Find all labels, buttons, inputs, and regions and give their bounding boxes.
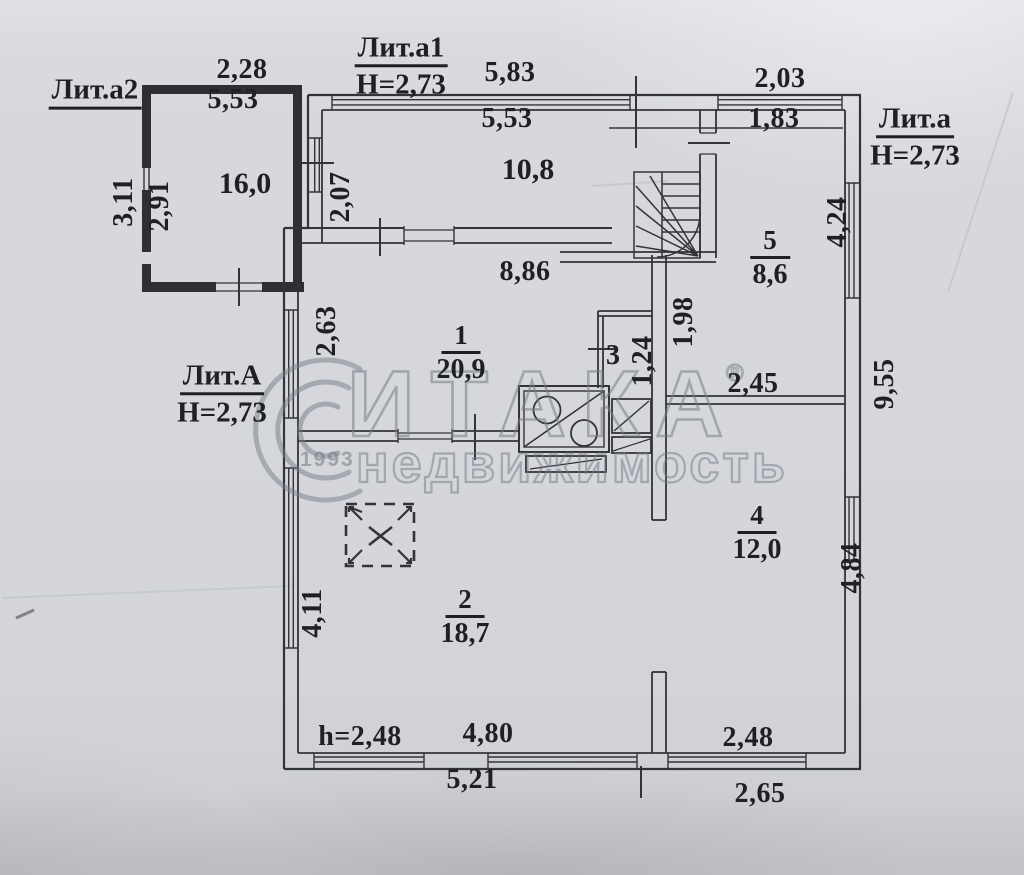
- chimney-vent-symbol: [346, 504, 414, 566]
- veranda-a1-label: Лит.а1 Н=2,73: [355, 32, 448, 99]
- plan-lines-layer: [0, 0, 1024, 875]
- watermark-registered-icon: ®: [726, 362, 744, 386]
- annex-a2-area: 16,0: [219, 169, 272, 199]
- veranda-room1-door: [380, 218, 454, 256]
- main-inner-walls: [284, 110, 845, 753]
- dim-480: 4,80: [463, 720, 514, 748]
- annex-a2-walls: [142, 85, 304, 292]
- room-label-2: 2 18,7: [441, 586, 490, 648]
- dim-484: 4,84: [838, 543, 866, 594]
- pen-mark: [16, 610, 34, 618]
- dim-a1-left: 2,07: [327, 172, 355, 223]
- dim-955: 9,55: [871, 359, 899, 410]
- sink-symbol: [612, 399, 651, 453]
- dim-a-width-outer: 2,03: [755, 65, 806, 93]
- dim-a-right-upper: 4,24: [824, 197, 852, 248]
- dim-124: 1,24: [629, 336, 657, 387]
- veranda-a1-area: 10,8: [502, 155, 555, 185]
- room-label-1: 1 20,9: [437, 322, 486, 384]
- watermark-logo-arcs: [0, 0, 1024, 875]
- dim-h248: h=2,48: [318, 723, 402, 751]
- dim-245: 2,45: [728, 370, 779, 398]
- dim-521: 5,21: [447, 766, 498, 794]
- dim-a2-width-outer: 2,28: [217, 56, 268, 84]
- room-label-5: 5 8,6: [750, 227, 790, 289]
- dim-a-width-inner: 1,83: [749, 105, 800, 133]
- dim-a2-width-inner: 5,53: [208, 86, 259, 114]
- annex-a2-label: Лит.а2: [49, 75, 142, 110]
- dimension-ticks: [300, 76, 641, 798]
- dim-a2-height-inner: 2,91: [146, 181, 174, 232]
- room-label-3: 3: [606, 342, 620, 370]
- porch-a-label: Лит.а Н=2,73: [870, 103, 960, 170]
- watermark-subtitle: недвижимость: [356, 437, 788, 491]
- dim-265: 2,65: [735, 780, 786, 808]
- dim-886: 8,86: [500, 258, 551, 286]
- paper-crease: [2, 92, 1013, 598]
- interior-walls: [298, 110, 845, 753]
- annex-a2-openings: [140, 168, 262, 306]
- dim-a1-width-inner: 5,53: [482, 105, 533, 133]
- dim-248: 2,48: [723, 724, 774, 752]
- room-label-4: 4 12,0: [733, 502, 782, 564]
- dim-a2-height-outer: 3,11: [110, 177, 138, 226]
- window-symbols: [284, 95, 860, 769]
- labels-layer: Лит.а2 2,28 5,53 3,11 2,91 16,0 Лит.а1 Н…: [0, 0, 1024, 875]
- dim-411: 4,11: [299, 588, 327, 637]
- main-outer-walls: [284, 95, 861, 769]
- main-A-label: Лит.А Н=2,73: [177, 360, 267, 427]
- dim-263: 2,63: [313, 306, 341, 357]
- floor-plan-scan: ИТАКА ® недвижимость 1993 Лит.а2 2,28 5,…: [0, 0, 1024, 875]
- dim-198: 1,98: [670, 297, 698, 348]
- watermark-layer: ИТАКА ® недвижимость 1993: [0, 0, 1024, 875]
- staircase-symbol: [634, 172, 700, 258]
- dim-a1-width-outer: 5,83: [485, 59, 536, 87]
- watermark-brand: ИТАКА: [347, 357, 739, 451]
- stove-symbol: [519, 386, 609, 472]
- watermark-year: 1993: [300, 448, 355, 472]
